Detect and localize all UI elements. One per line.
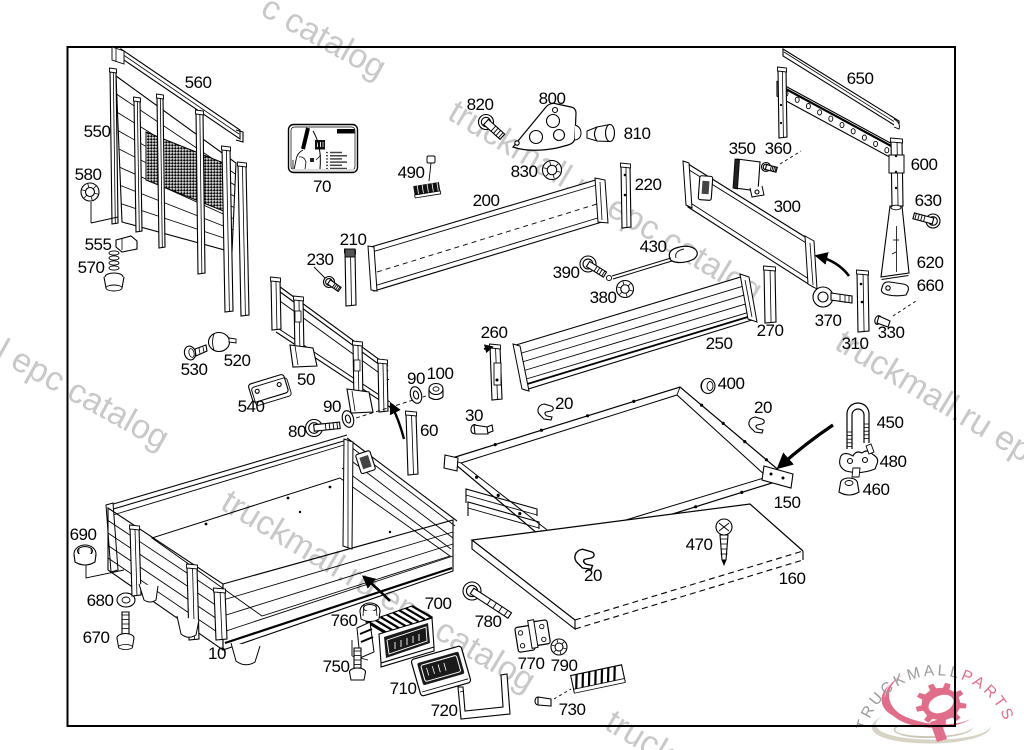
svg-text:820: 820 bbox=[467, 95, 494, 114]
svg-text:790: 790 bbox=[551, 656, 578, 675]
svg-text:230: 230 bbox=[307, 250, 334, 269]
svg-text:90: 90 bbox=[407, 369, 425, 388]
svg-text:260: 260 bbox=[481, 323, 508, 342]
svg-text:150: 150 bbox=[774, 493, 801, 512]
svg-text:730: 730 bbox=[559, 700, 586, 719]
svg-text:30: 30 bbox=[465, 406, 483, 425]
svg-text:220: 220 bbox=[635, 175, 662, 194]
svg-text:80: 80 bbox=[288, 422, 306, 441]
svg-text:100: 100 bbox=[427, 364, 454, 383]
svg-text:570: 570 bbox=[78, 258, 105, 277]
svg-text:800: 800 bbox=[539, 89, 566, 108]
svg-text:520: 520 bbox=[224, 351, 251, 370]
svg-text:670: 670 bbox=[83, 628, 110, 647]
svg-text:60: 60 bbox=[420, 421, 438, 440]
svg-text:560: 560 bbox=[185, 73, 212, 92]
svg-text:370: 370 bbox=[815, 311, 842, 330]
svg-text:620: 620 bbox=[917, 253, 944, 272]
svg-text:330: 330 bbox=[878, 323, 905, 342]
svg-text:770: 770 bbox=[518, 654, 545, 673]
svg-text:760: 760 bbox=[331, 611, 358, 630]
svg-text:630: 630 bbox=[915, 191, 942, 210]
svg-text:160: 160 bbox=[779, 569, 806, 588]
svg-text:580: 580 bbox=[75, 165, 102, 184]
svg-text:300: 300 bbox=[774, 197, 801, 216]
svg-text:550: 550 bbox=[84, 122, 111, 141]
svg-text:400: 400 bbox=[718, 374, 745, 393]
svg-text:350: 350 bbox=[729, 139, 756, 158]
svg-text:680: 680 bbox=[87, 591, 114, 610]
svg-text:700: 700 bbox=[425, 594, 452, 613]
svg-text:360: 360 bbox=[765, 139, 792, 158]
svg-text:390: 390 bbox=[553, 263, 580, 282]
svg-text:70: 70 bbox=[313, 177, 331, 196]
svg-text:460: 460 bbox=[863, 480, 890, 499]
svg-text:750: 750 bbox=[323, 657, 350, 676]
svg-text:10: 10 bbox=[208, 644, 226, 663]
svg-text:780: 780 bbox=[475, 612, 502, 631]
svg-text:20: 20 bbox=[754, 398, 772, 417]
svg-text:210: 210 bbox=[340, 230, 367, 249]
svg-text:430: 430 bbox=[640, 237, 667, 256]
svg-text:710: 710 bbox=[390, 679, 417, 698]
svg-text:380: 380 bbox=[590, 288, 617, 307]
svg-text:530: 530 bbox=[181, 360, 208, 379]
svg-text:600: 600 bbox=[911, 155, 938, 174]
svg-text:540: 540 bbox=[238, 397, 265, 416]
svg-text:555: 555 bbox=[85, 235, 112, 254]
svg-text:690: 690 bbox=[70, 525, 97, 544]
svg-text:720: 720 bbox=[431, 701, 458, 720]
svg-text:650: 650 bbox=[847, 69, 874, 88]
svg-text:480: 480 bbox=[880, 452, 907, 471]
svg-text:200: 200 bbox=[473, 191, 500, 210]
svg-text:490: 490 bbox=[398, 163, 425, 182]
svg-text:20: 20 bbox=[584, 566, 602, 585]
svg-text:50: 50 bbox=[297, 370, 315, 389]
svg-text:310: 310 bbox=[842, 334, 869, 353]
svg-text:270: 270 bbox=[757, 321, 784, 340]
svg-text:660: 660 bbox=[917, 276, 944, 295]
svg-text:450: 450 bbox=[877, 413, 904, 432]
svg-text:90: 90 bbox=[323, 397, 341, 416]
svg-text:830: 830 bbox=[511, 162, 538, 181]
svg-text:470: 470 bbox=[686, 535, 713, 554]
svg-text:810: 810 bbox=[624, 124, 651, 143]
svg-text:20: 20 bbox=[555, 394, 573, 413]
svg-text:250: 250 bbox=[706, 334, 733, 353]
